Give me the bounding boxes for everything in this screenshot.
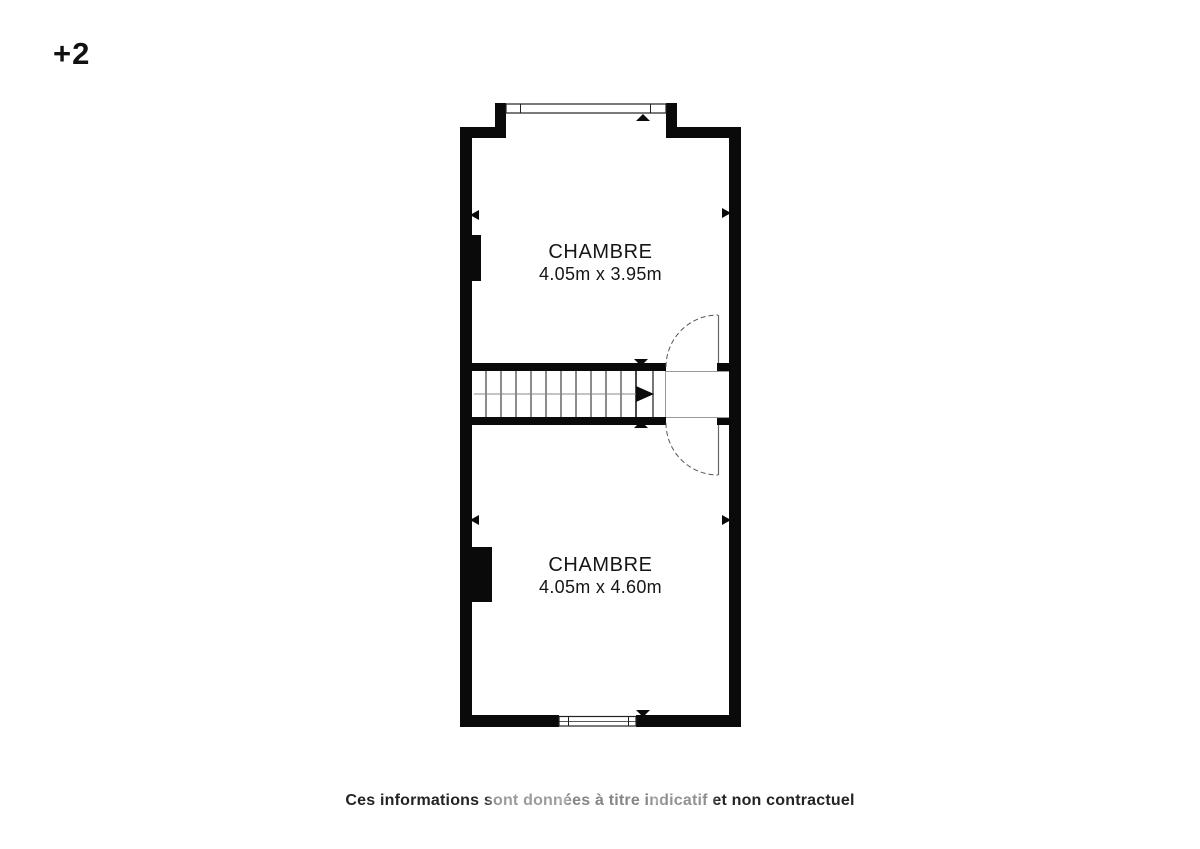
room-lower-name: CHAMBRE [460,554,741,577]
door-upper-swing-arc [666,315,718,367]
wall-bottom-left-segment [460,715,559,727]
door-upper [666,315,719,367]
room-upper-dimensions: 4.05m x 3.95m [460,264,741,285]
door-lower [666,423,719,475]
stairwell-wall-lower [460,417,666,425]
wall-bottom-right-segment [636,715,741,727]
window-top [506,104,666,113]
stair-direction-arrow [636,386,654,402]
wall-top-right-segment [666,127,741,138]
stairwell-wall-upper-stub [717,363,741,371]
wall-right [729,127,741,727]
landing-guides [666,371,730,418]
disclaimer-text: Ces informations sont données à titre in… [0,792,1200,810]
window-jamb-left [495,103,506,138]
outer-walls [460,103,741,727]
stairwell-wall-upper [460,363,666,371]
window-top-frame [506,104,666,113]
room-upper-name: CHAMBRE [460,241,741,264]
marker-top-window-up [636,114,650,121]
wall-left [460,127,472,727]
floorplan-page: +2 [0,0,1200,849]
floorplan-drawing [0,0,1200,849]
window-jamb-right [666,103,677,138]
door-lower-swing-arc [666,423,718,475]
stairwell-wall-lower-stub [717,417,741,425]
window-bottom [559,717,636,727]
room-lower-dimensions: 4.05m x 4.60m [460,577,741,598]
